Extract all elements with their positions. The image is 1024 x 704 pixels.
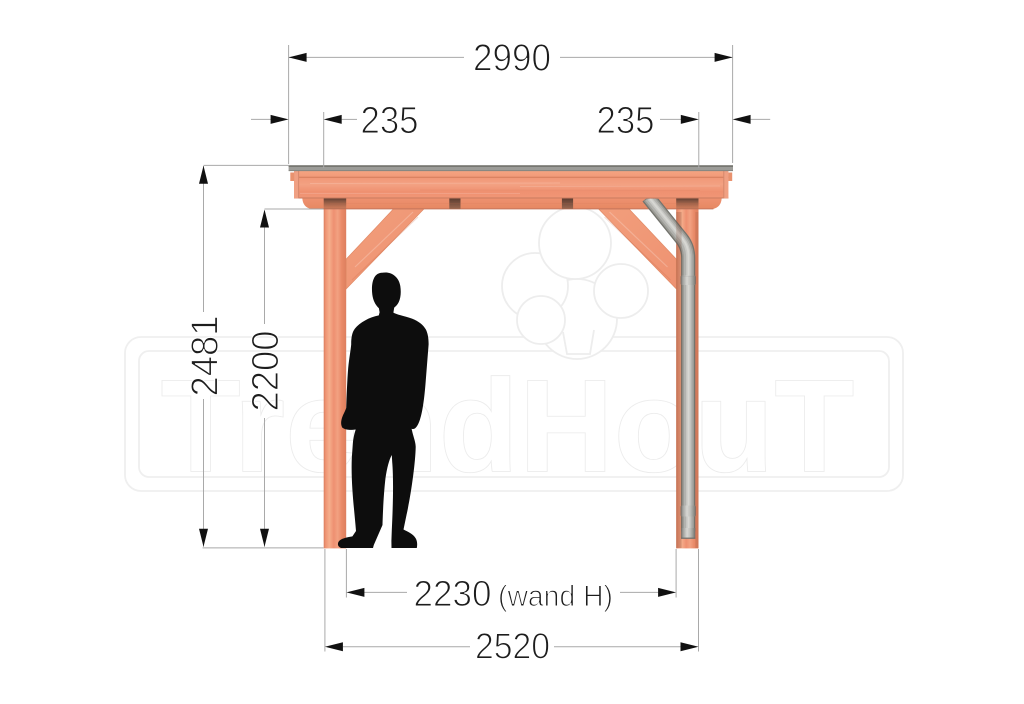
svg-text:(wand H): (wand H) [498,580,613,613]
svg-text:2481: 2481 [185,316,227,397]
svg-text:2990: 2990 [473,38,551,80]
svg-text:235: 235 [597,100,655,142]
svg-text:2230: 2230 [414,573,492,614]
svg-text:2200: 2200 [245,331,287,412]
svg-text:2520: 2520 [475,626,550,667]
svg-text:235: 235 [361,100,419,142]
